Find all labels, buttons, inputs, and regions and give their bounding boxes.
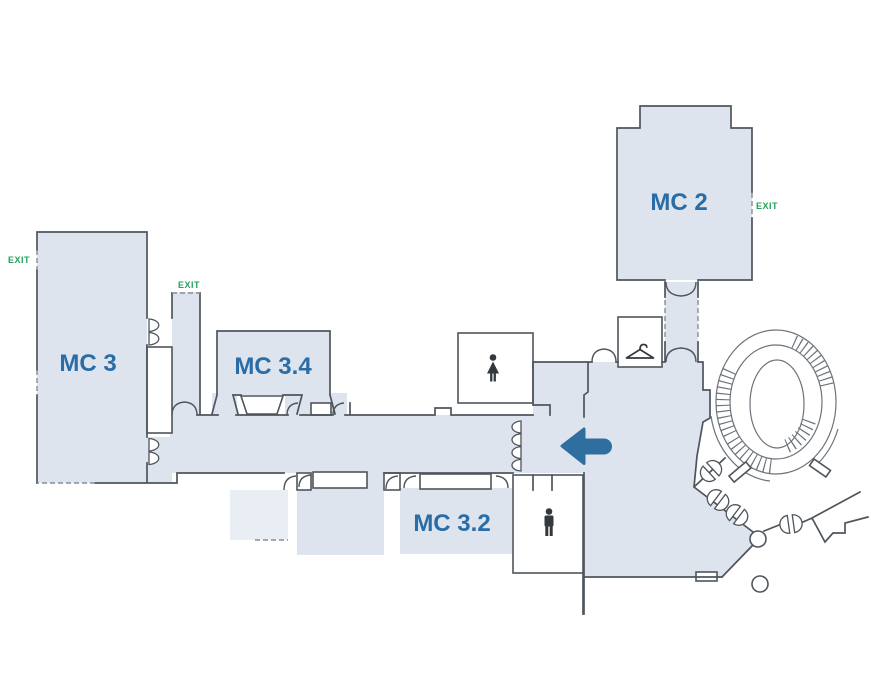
mc3-side-recess bbox=[147, 347, 172, 433]
room-label-mc2: MC 2 bbox=[650, 189, 707, 216]
mc2-corridor bbox=[665, 282, 698, 362]
cloakroom bbox=[618, 317, 662, 367]
swing-door-pair bbox=[779, 514, 804, 535]
door-arc bbox=[496, 476, 508, 488]
room-label-mc3: MC 3 bbox=[59, 350, 116, 377]
folding-door bbox=[149, 319, 159, 345]
columns bbox=[750, 531, 768, 592]
floor-plan-svg: MC 3 MC 3.4 MC 3.2 MC 2 EXIT EXIT EXIT bbox=[0, 0, 871, 694]
exit-label-east: EXIT bbox=[756, 201, 778, 211]
corridor-east-link bbox=[533, 362, 588, 417]
mc32-entry-recess bbox=[420, 474, 491, 489]
room-label-mc34: MC 3.4 bbox=[234, 353, 312, 380]
spiral-staircase bbox=[711, 330, 838, 482]
corridor-north-stub bbox=[172, 292, 200, 415]
column bbox=[750, 531, 766, 547]
exit-label-west: EXIT bbox=[8, 255, 30, 265]
door-arc bbox=[284, 476, 296, 490]
main-corridor bbox=[170, 415, 535, 473]
double-door-arc bbox=[592, 349, 616, 362]
corridor-recess bbox=[311, 403, 331, 415]
mc34-entry-recess bbox=[241, 396, 283, 414]
room-label-mc32: MC 3.2 bbox=[413, 510, 490, 537]
small-room-a bbox=[230, 490, 288, 540]
room-b-entry-recess bbox=[313, 472, 367, 488]
exit-label-north: EXIT bbox=[178, 280, 200, 290]
column bbox=[752, 576, 768, 592]
door-arc bbox=[404, 476, 416, 488]
floor-plan-canvas: MC 3 MC 3.4 MC 3.2 MC 2 EXIT EXIT EXIT bbox=[0, 0, 871, 694]
